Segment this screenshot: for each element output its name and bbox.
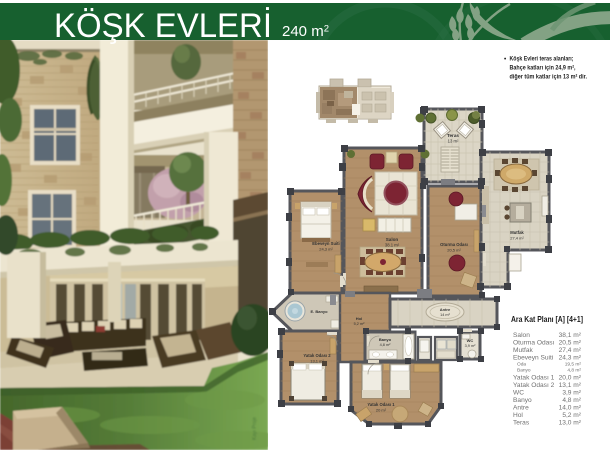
- svg-text:5,2 m²: 5,2 m²: [354, 322, 365, 326]
- svg-text:13,0 m²: 13,0 m²: [559, 420, 582, 427]
- svg-text:Yatak Odası 2: Yatak Odası 2: [303, 353, 331, 358]
- svg-text:Oturma Odası: Oturma Odası: [513, 340, 555, 347]
- svg-text:3,9 m²: 3,9 m²: [465, 344, 476, 348]
- svg-text:Bahçe katları için 24,9 m²,: Bahçe katları için 24,9 m²,: [510, 65, 576, 72]
- svg-text:3,9 m²: 3,9 m²: [562, 390, 581, 397]
- svg-text:20,0 m²: 20,0 m²: [559, 375, 582, 382]
- svg-text:13 m²: 13 m²: [448, 139, 459, 144]
- svg-text:Banyo: Banyo: [379, 337, 392, 342]
- svg-text:Ebeveyn Suiti: Ebeveyn Suiti: [513, 355, 554, 362]
- svg-text:4,8 m²: 4,8 m²: [567, 367, 581, 373]
- svg-text:13,1 m²: 13,1 m²: [310, 359, 324, 364]
- svg-text:20,5 m²: 20,5 m²: [559, 340, 582, 347]
- svg-text:5,2 m²: 5,2 m²: [562, 412, 581, 419]
- svg-text:Mutfak: Mutfak: [510, 230, 524, 235]
- svg-text:Yatak Odası 2: Yatak Odası 2: [513, 382, 555, 389]
- svg-text:4,8 m²: 4,8 m²: [380, 343, 391, 347]
- svg-text:Hol: Hol: [513, 412, 523, 419]
- svg-text:14 m²: 14 m²: [440, 313, 450, 317]
- svg-text:24,3 m²: 24,3 m²: [319, 247, 333, 252]
- svg-text:20,5 m²: 20,5 m²: [447, 248, 461, 253]
- svg-text:Yatak Odası 1: Yatak Odası 1: [513, 375, 555, 382]
- svg-text:Antre: Antre: [513, 405, 529, 412]
- svg-text:Ebeveyn Suiti: Ebeveyn Suiti: [312, 241, 339, 246]
- svg-text:WC: WC: [513, 390, 524, 397]
- svg-text:13,1 m²: 13,1 m²: [559, 382, 582, 389]
- svg-text:Hol: Hol: [356, 316, 362, 321]
- svg-text:WC: WC: [467, 338, 474, 343]
- svg-text:24,3 m²: 24,3 m²: [559, 355, 582, 362]
- svg-text:Oda: Oda: [517, 362, 526, 368]
- svg-text:Banyo: Banyo: [513, 397, 532, 404]
- svg-text:Mutfak: Mutfak: [513, 347, 533, 354]
- svg-text:Oturma Odası: Oturma Odası: [440, 242, 468, 247]
- svg-text:Teras: Teras: [447, 133, 459, 138]
- svg-text:19,5 m²: 19,5 m²: [565, 362, 582, 368]
- svg-text:Köşk Evleri teras alanları;: Köşk Evleri teras alanları;: [510, 56, 574, 63]
- svg-text:Teras: Teras: [513, 420, 530, 427]
- svg-text:Yatak Odası 1: Yatak Odası 1: [367, 402, 395, 407]
- svg-text:E. Banyo: E. Banyo: [310, 309, 328, 314]
- svg-text:KÖŞK EVLERİ: KÖŞK EVLERİ: [54, 7, 272, 45]
- svg-text:14,0 m²: 14,0 m²: [559, 405, 582, 412]
- svg-text:27,4 m²: 27,4 m²: [510, 236, 524, 241]
- svg-text:27,4 m²: 27,4 m²: [559, 347, 582, 354]
- svg-text:20 m²: 20 m²: [376, 408, 387, 413]
- svg-text:Antre: Antre: [440, 307, 451, 312]
- svg-text:240 m2: 240 m2: [282, 23, 329, 40]
- svg-text:Salon: Salon: [513, 332, 530, 339]
- svg-text:4,8 m²: 4,8 m²: [562, 397, 581, 404]
- svg-text:Banyo: Banyo: [517, 367, 531, 373]
- svg-text:Ara Kat Planı [A] [4+1]: Ara Kat Planı [A] [4+1]: [511, 314, 583, 324]
- svg-text:38,1 m²: 38,1 m²: [559, 332, 582, 339]
- svg-text:Salon: Salon: [386, 237, 399, 242]
- svg-text:Kayı Proje: Kayı Proje: [252, 417, 258, 440]
- svg-text:diğer tüm katlar için 13 m² di: diğer tüm katlar için 13 m² dir.: [510, 74, 588, 81]
- svg-text:•: •: [504, 56, 507, 63]
